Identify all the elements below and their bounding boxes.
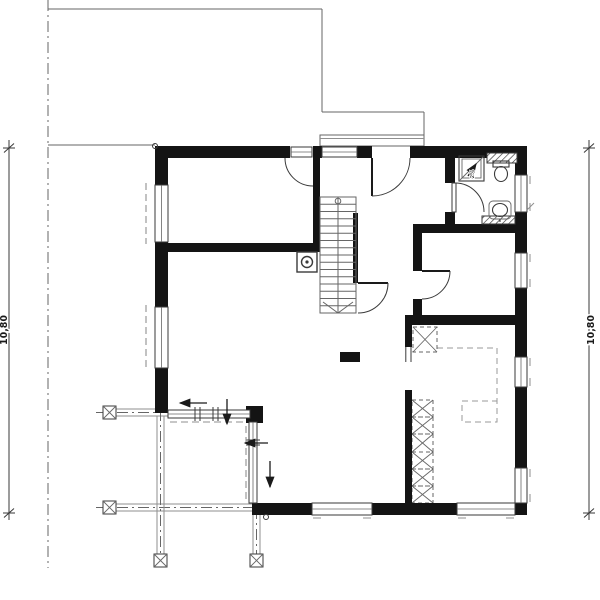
window-sidelight bbox=[322, 147, 357, 157]
floor-plan-canvas: 10,80 10,80 2% bbox=[0, 0, 600, 600]
shower-slope-label: 2% bbox=[470, 170, 476, 179]
floor-plan-sheet: 10,80 10,80 2% bbox=[0, 0, 600, 600]
dimension-label-right: 10,80 bbox=[586, 315, 597, 345]
dimension-label-left: 10,80 bbox=[0, 315, 10, 345]
wall-stub bbox=[340, 352, 360, 362]
